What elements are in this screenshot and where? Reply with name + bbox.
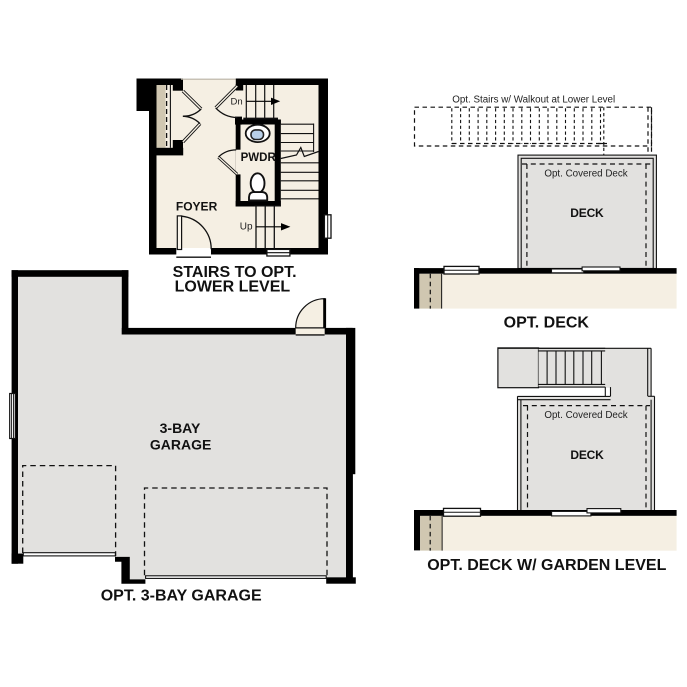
svg-text:Up: Up bbox=[240, 221, 253, 232]
svg-text:Opt. Covered Deck: Opt. Covered Deck bbox=[544, 168, 627, 179]
svg-text:PWDR: PWDR bbox=[241, 152, 277, 164]
svg-text:Dn: Dn bbox=[231, 96, 243, 107]
svg-text:Opt. Covered Deck: Opt. Covered Deck bbox=[544, 410, 627, 421]
svg-text:FOYER: FOYER bbox=[176, 200, 218, 214]
svg-text:OPT. DECK: OPT. DECK bbox=[504, 314, 590, 331]
svg-text:OPT. DECK W/ GARDEN LEVEL: OPT. DECK W/ GARDEN LEVEL bbox=[427, 557, 666, 574]
svg-text:DECK: DECK bbox=[570, 206, 604, 220]
svg-text:3-BAY: 3-BAY bbox=[160, 420, 201, 436]
svg-text:LOWER LEVEL: LOWER LEVEL bbox=[175, 279, 291, 296]
svg-text:Opt. Stairs w/ Walkout at Lowe: Opt. Stairs w/ Walkout at Lower Level bbox=[452, 95, 615, 106]
svg-text:OPT. 3-BAY GARAGE: OPT. 3-BAY GARAGE bbox=[101, 588, 262, 605]
svg-text:DECK: DECK bbox=[570, 448, 604, 462]
svg-text:GARAGE: GARAGE bbox=[150, 437, 211, 453]
